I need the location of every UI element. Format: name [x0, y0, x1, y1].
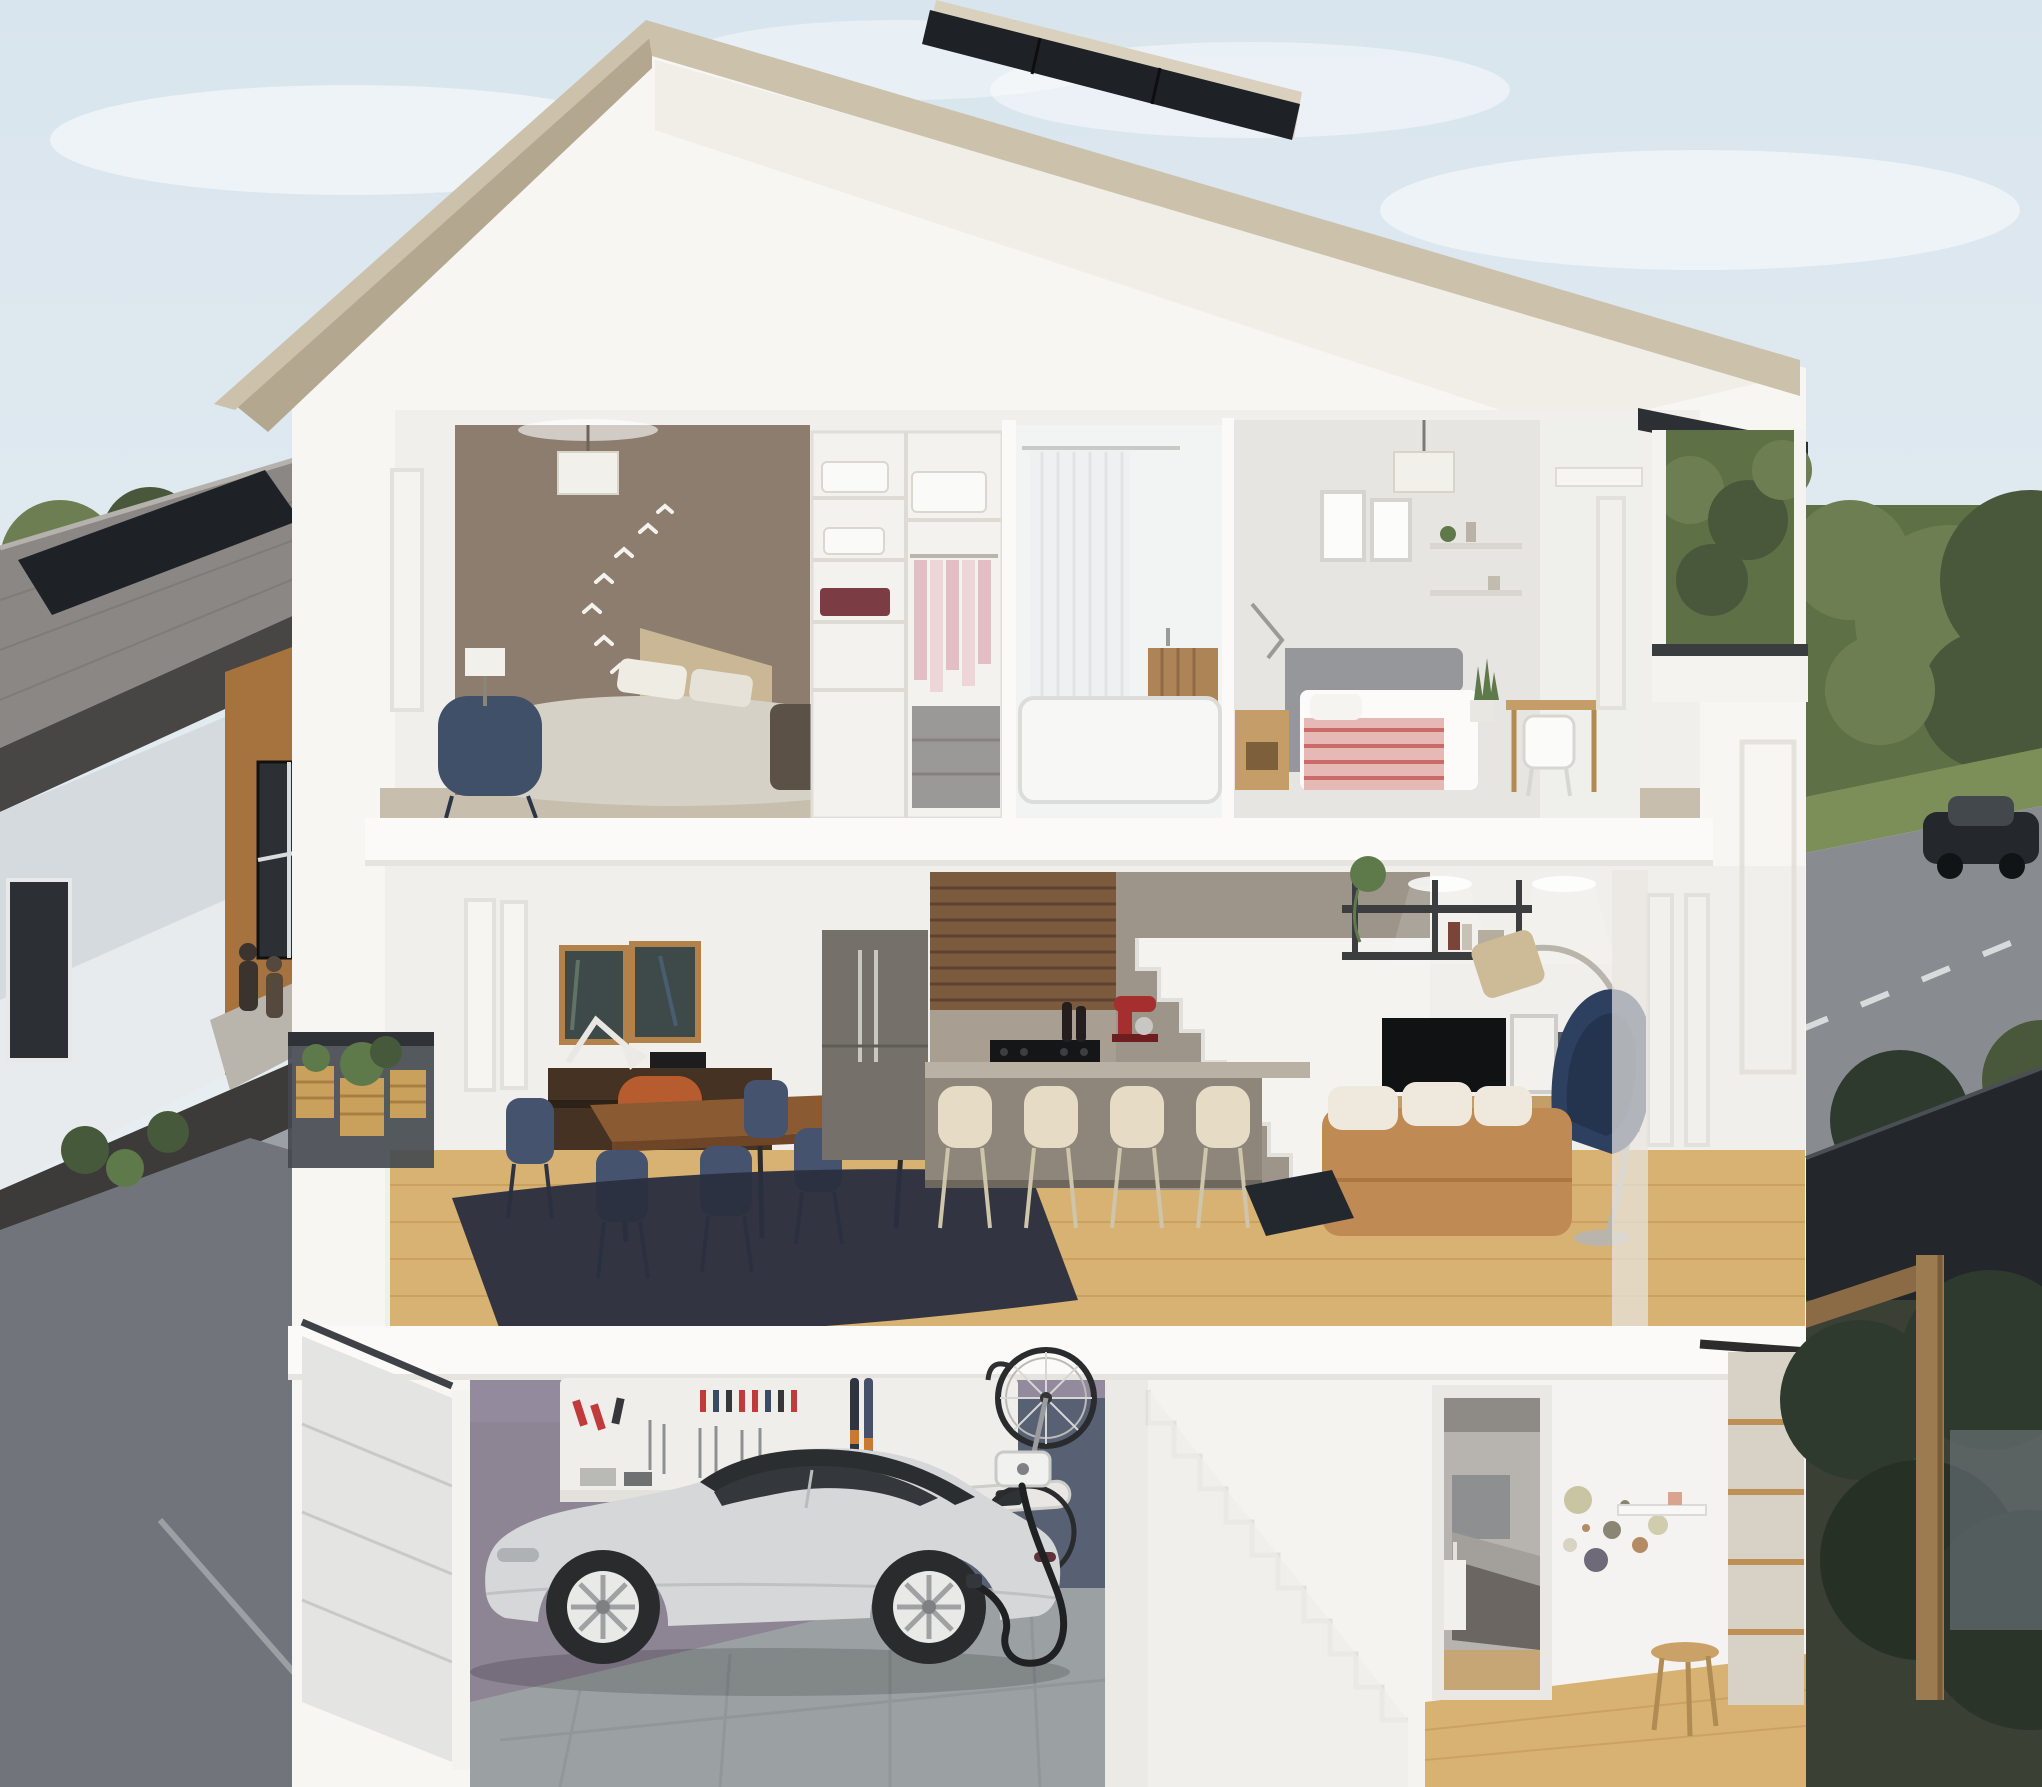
second-bedroom: [1234, 420, 1642, 820]
main-floor: [288, 856, 1806, 1380]
tv: [1382, 1018, 1506, 1092]
walk-in-closet: [812, 432, 1002, 818]
person: [239, 943, 258, 1011]
fence-glimpse: [1950, 1430, 2042, 1630]
staircase-lower: [1105, 1380, 1425, 1787]
nightstand: [1444, 1560, 1466, 1630]
parapet-cap: [1652, 644, 1808, 656]
bed-2: [1285, 648, 1478, 790]
window: [8, 880, 70, 1060]
bathroom: [1016, 425, 1222, 820]
storage-bins: [820, 588, 890, 616]
cutaway-illustration: [0, 0, 2042, 1787]
scene-root: [0, 0, 2042, 1787]
partition-wall: [1222, 418, 1234, 820]
person: [266, 956, 283, 1018]
pergola-carport: [1780, 1068, 2042, 1787]
headlight: [497, 1548, 539, 1562]
balcony: [288, 1032, 434, 1168]
drawer-stack: [912, 706, 1000, 808]
wood-slat-wall: [930, 872, 1116, 1010]
wall-art: [1322, 492, 1410, 560]
ceiling-fixture: [1556, 468, 1642, 486]
leaning-frame: [1512, 1016, 1556, 1092]
parapet: [1652, 656, 1808, 702]
wall-shelf-small: [1618, 1505, 1706, 1515]
ev-charger: [996, 1452, 1050, 1486]
partition-wall: [1002, 420, 1016, 820]
nightstand: [1235, 710, 1289, 790]
area-rug: [452, 1169, 1078, 1334]
car-wheel: [546, 1550, 660, 1664]
cooktop: [990, 1040, 1100, 1064]
floor-slab-upper: [365, 818, 1713, 866]
flex-room: [1425, 1344, 1808, 1787]
upper-floor: [365, 410, 1713, 866]
edge-windows: [466, 900, 526, 1090]
bathtub: [1020, 698, 1220, 802]
pergola-shade: [1780, 1270, 2042, 1787]
window-trim: [392, 470, 422, 710]
bed-3: [1452, 1475, 1510, 1539]
bedroom-doorway: [1432, 1385, 1552, 1700]
countertop: [925, 1062, 1310, 1078]
art-frames: [562, 944, 698, 1042]
car-wheel: [872, 1550, 986, 1664]
lower-floor: [302, 1322, 1808, 1787]
shower-curtain: [1030, 450, 1130, 698]
window-edge: [1598, 498, 1624, 708]
charge-port: [966, 1574, 982, 1588]
